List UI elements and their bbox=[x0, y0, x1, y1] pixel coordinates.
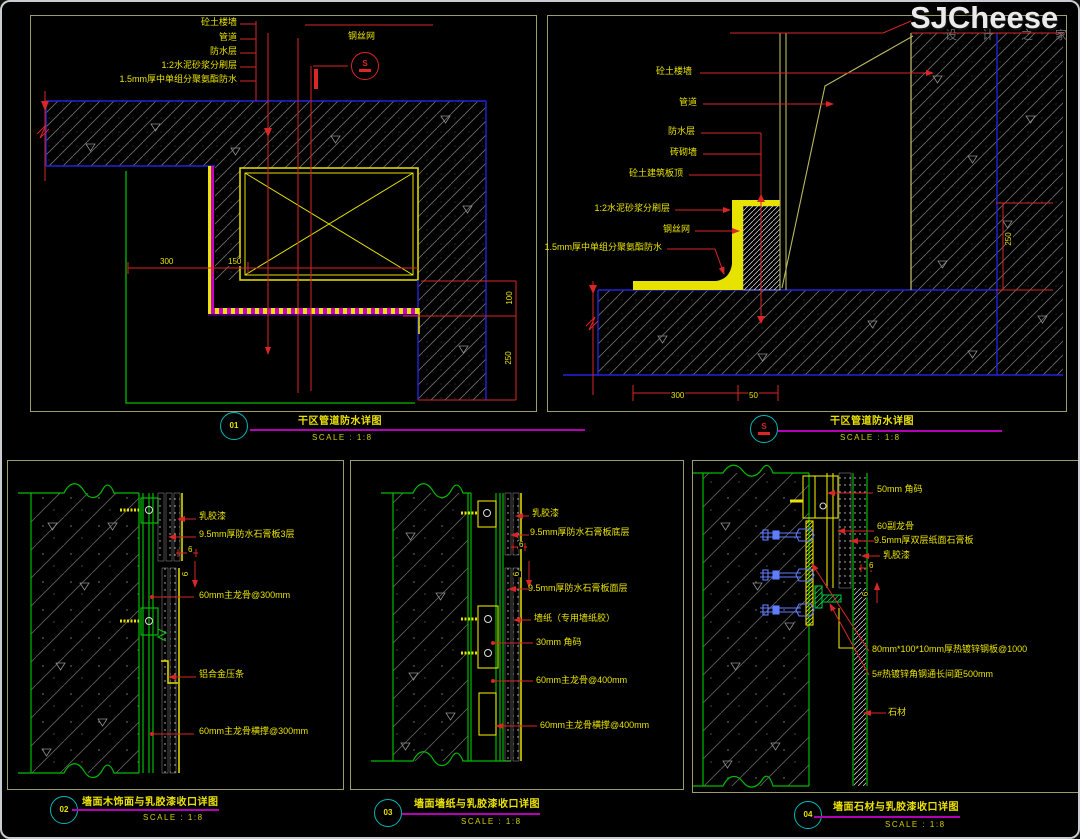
label-concrete-wall: 砼土楼墙 bbox=[201, 17, 237, 27]
detail-panel-02 bbox=[7, 460, 344, 790]
label-cement-mortar: 1:2水泥砂浆分刷层 bbox=[161, 60, 237, 70]
detail-number-04: 04 bbox=[804, 811, 813, 819]
label-pipe: 管道 bbox=[219, 32, 237, 42]
drawing-linework-02 bbox=[8, 461, 343, 789]
title-underline-S bbox=[778, 430, 1002, 432]
section-callout-id: S bbox=[362, 60, 367, 68]
detail-panel-04 bbox=[692, 460, 1080, 793]
label-gypsum-board-base: 9.5mm厚防水石膏板底层 bbox=[530, 527, 630, 537]
label-galvanized-steel-plate: 80mm*100*10mm厚热镀锌钢板@1000 bbox=[872, 644, 1027, 654]
label-50mm-bracket: 50mm 角码 bbox=[877, 484, 923, 494]
label-latex-paint: 乳胶漆 bbox=[532, 508, 559, 518]
label-latex-paint: 乳胶漆 bbox=[883, 550, 910, 560]
dim-50: 50 bbox=[748, 392, 759, 400]
drawing-linework-04 bbox=[693, 461, 1080, 792]
detail-title-02: 墙面木饰面与乳胶漆收口详图 bbox=[82, 797, 219, 808]
detail-title-S: 干区管道防水详图 bbox=[830, 416, 914, 427]
label-gypsum-board-3ply: 9.5mm厚防水石膏板3层 bbox=[199, 529, 295, 539]
drawing-linework-01 bbox=[31, 16, 536, 411]
label-brick-wall: 砖砌墙 bbox=[670, 147, 697, 157]
detail-number-bar-S bbox=[758, 432, 770, 435]
dim-6: 6 bbox=[518, 541, 524, 549]
dim-6: 6 bbox=[868, 562, 874, 570]
detail-title-04: 墙面石材与乳胶漆收口详图 bbox=[833, 802, 959, 813]
dim-6: 6 bbox=[187, 546, 193, 554]
detail-scale-04: SCALE : 1:8 bbox=[885, 821, 946, 829]
label-gypsum-board-face: 9.5mm厚防水石膏板面层 bbox=[528, 583, 628, 593]
label-concrete-slab-top: 砼土建筑板顶 bbox=[629, 168, 683, 178]
title-underline-03 bbox=[402, 813, 540, 815]
title-underline-01 bbox=[250, 429, 585, 431]
label-main-keel-300: 60mm主龙骨@300mm bbox=[199, 590, 290, 600]
label-polyurethane-waterproof: 1.5mm厚中单组分聚氨酯防水 bbox=[119, 74, 237, 84]
label-waterproof-layer: 防水层 bbox=[210, 46, 237, 56]
label-double-gypsum-board: 9.5mm厚双层纸面石膏板 bbox=[874, 535, 974, 545]
detail-number-02: 02 bbox=[60, 806, 69, 814]
drawing-linework-S bbox=[548, 16, 1066, 411]
section-callout-bar bbox=[359, 69, 371, 72]
title-underline-04 bbox=[814, 816, 960, 818]
label-galvanized-angle-steel: 5#热镀锌角钢通长间距500mm bbox=[872, 669, 993, 679]
detail-scale-S: SCALE : 1:8 bbox=[840, 434, 901, 442]
watermark-char-3: 之 bbox=[1021, 29, 1033, 41]
detail-title-01: 干区管道防水详图 bbox=[298, 416, 382, 427]
watermark-char-1: 设 bbox=[945, 29, 957, 41]
label-secondary-keel: 60副龙骨 bbox=[877, 521, 914, 531]
label-cement-mortar: 1:2水泥砂浆分刷层 bbox=[594, 203, 670, 213]
watermark-char-4: 家 bbox=[1055, 29, 1067, 41]
dim-6-vertical: 6 bbox=[182, 571, 190, 577]
label-polyurethane-waterproof: 1.5mm厚中单组分聚氨酯防水 bbox=[544, 242, 662, 252]
dim-250-vertical: 250 bbox=[505, 350, 513, 365]
detail-number-03: 03 bbox=[384, 809, 393, 817]
label-latex-paint: 乳胶漆 bbox=[199, 511, 226, 521]
label-wire-mesh: 钢丝网 bbox=[348, 31, 375, 41]
detail-number-bubble-01: 01 bbox=[220, 412, 248, 440]
label-keel-brace-400: 60mm主龙骨横撑@400mm bbox=[540, 720, 649, 730]
label-main-keel-400: 60mm主龙骨@400mm bbox=[536, 675, 627, 685]
dim-6-vertical: 6 bbox=[862, 591, 870, 597]
dim-100-vertical: 100 bbox=[506, 290, 514, 305]
label-concrete-wall: 砼土楼墙 bbox=[656, 66, 692, 76]
watermark-char-2: 计 bbox=[982, 29, 994, 41]
label-wire-mesh: 钢丝网 bbox=[663, 224, 690, 234]
label-aluminum-strip: 铝合金压条 bbox=[199, 669, 244, 679]
label-keel-brace-300: 60mm主龙骨横撑@300mm bbox=[199, 726, 308, 736]
label-30mm-bracket: 30mm 角码 bbox=[536, 637, 582, 647]
detail-title-03: 墙面墙纸与乳胶漆收口详图 bbox=[414, 799, 540, 810]
dim-6-vertical: 6 bbox=[513, 571, 521, 577]
label-wallpaper: 墙纸（专用墙纸胶） bbox=[534, 613, 615, 623]
detail-number-bubble-S: S bbox=[750, 415, 778, 443]
detail-number-01: 01 bbox=[230, 422, 239, 430]
detail-number-bubble-04: 04 bbox=[794, 801, 822, 829]
label-stone: 石材 bbox=[888, 707, 906, 717]
dim-300: 300 bbox=[670, 392, 685, 400]
detail-scale-03: SCALE : 1:8 bbox=[461, 818, 522, 826]
dim-300: 300 bbox=[159, 258, 174, 266]
detail-scale-02: SCALE : 1:8 bbox=[143, 814, 204, 822]
detail-panel-S bbox=[547, 15, 1067, 412]
dim-150: 150 bbox=[227, 258, 242, 266]
detail-scale-01: SCALE : 1:8 bbox=[312, 434, 373, 442]
detail-panel-03 bbox=[350, 460, 684, 790]
detail-panel-01: S bbox=[30, 15, 537, 412]
title-underline-02 bbox=[72, 809, 219, 811]
cad-screenshot: S 砼土楼墙 管道 防水层 1:2水泥砂浆分刷层 1.5mm厚中单组分聚氨酯防水… bbox=[0, 0, 1080, 839]
drawing-linework-03 bbox=[351, 461, 683, 789]
label-pipe: 管道 bbox=[679, 97, 697, 107]
detail-number-S: S bbox=[761, 423, 766, 431]
section-callout-bubble: S bbox=[351, 52, 379, 80]
label-waterproof-layer: 防水层 bbox=[668, 126, 695, 136]
detail-number-bubble-03: 03 bbox=[374, 799, 402, 827]
dim-250-vertical: 250 bbox=[1005, 231, 1013, 246]
